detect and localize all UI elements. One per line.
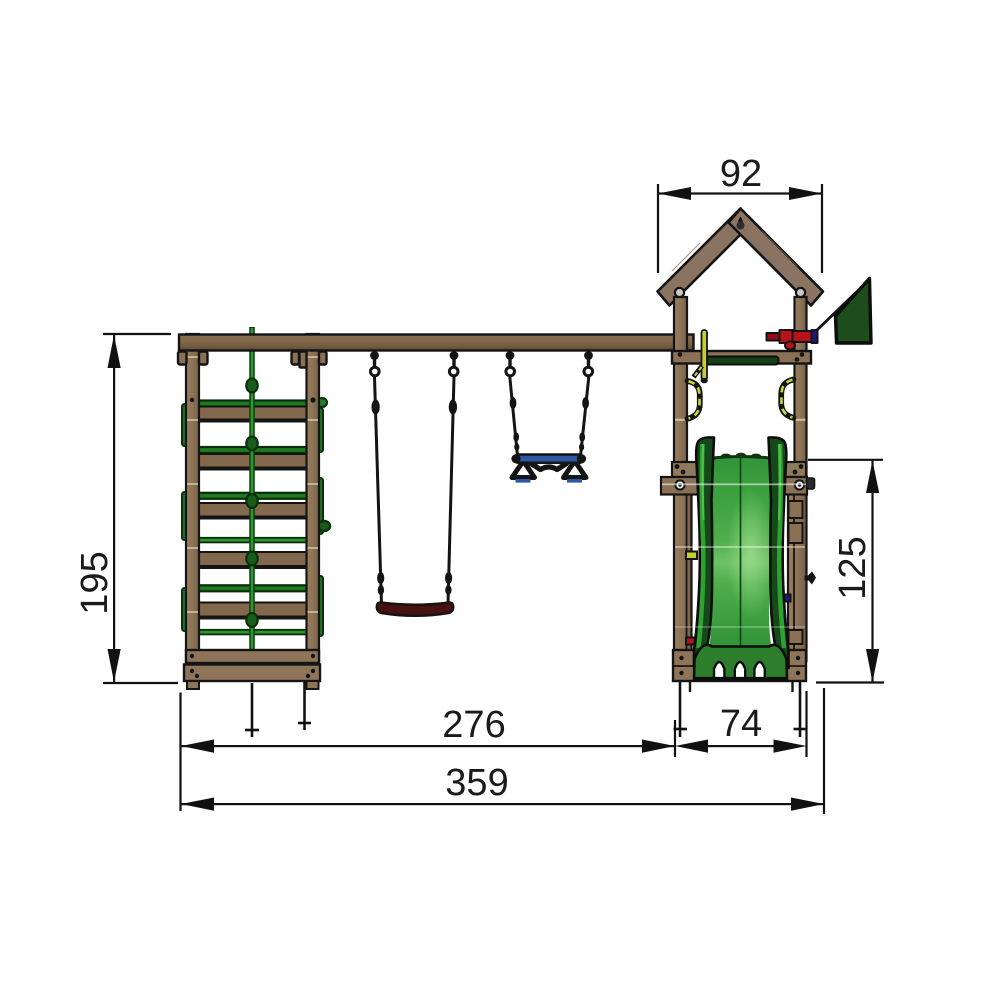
- svg-text:359: 359: [445, 762, 508, 804]
- svg-text:125: 125: [832, 536, 874, 599]
- svg-text:195: 195: [74, 551, 116, 614]
- svg-text:92: 92: [720, 153, 762, 195]
- svg-text:276: 276: [442, 704, 505, 746]
- svg-text:74: 74: [720, 703, 762, 745]
